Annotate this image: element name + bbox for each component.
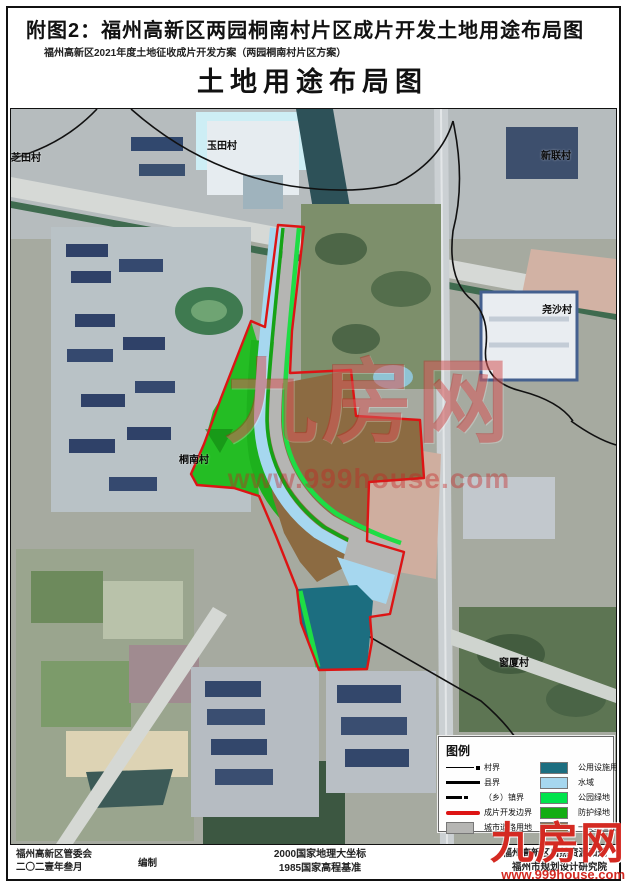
- dashed-line-symbol: [446, 796, 480, 800]
- footer-role: 编制: [138, 855, 157, 869]
- line-dot-symbol: [446, 766, 480, 770]
- park-swatch: [540, 792, 574, 804]
- figure-subtitle: 福州高新区2021年度土地征收成片开发方案（两园桐南村片区方案）: [44, 44, 346, 59]
- legend-item-protective-green: 防护绿地: [540, 807, 617, 818]
- legend-item-city-road: 城市道路用地: [446, 822, 532, 833]
- legend: 图例 村界 县界 （乡）镇界 成片开发边界: [438, 736, 614, 832]
- legend-left-column: 村界 县界 （乡）镇界 成片开发边界 城市道路用地: [446, 762, 532, 833]
- village-label: 玉田村: [207, 137, 237, 152]
- footer-date: 二〇二壹年叁月: [16, 861, 92, 874]
- map-title: 土地用途布局图: [0, 60, 625, 99]
- footer-center: 2000国家地理大坐标 1985国家高程基准: [200, 848, 440, 876]
- village-label: 尧沙村: [542, 301, 572, 316]
- red-line-symbol: [446, 811, 480, 815]
- village-label: 新联村: [541, 147, 571, 162]
- footer-elevation: 1985国家高程基准: [200, 862, 440, 876]
- village-label: 芝田村: [11, 149, 41, 164]
- footer-institute: 福州市规划设计研究院: [407, 861, 607, 875]
- legend-item-utility: 公用设施用地: [540, 762, 617, 773]
- footer-left: 福州高新区管委会 二〇二壹年叁月: [16, 848, 92, 875]
- map-svg: [11, 109, 616, 844]
- footer-right: 福州高新区自然资源和规 福州市规划设计研究院: [407, 847, 607, 876]
- industrial-swatch: [540, 822, 574, 834]
- legend-title: 图例: [446, 742, 606, 759]
- legend-right-column: 公用设施用地 水域 公园绿地 防护绿地 一类工业用地: [540, 762, 617, 833]
- thick-line-symbol: [446, 781, 480, 785]
- legend-item-town-boundary: （乡）镇界: [446, 792, 532, 803]
- map-footer: 福州高新区管委会 二〇二壹年叁月 编制 2000国家地理大坐标 1985国家高程…: [10, 845, 615, 877]
- road-swatch: [446, 822, 480, 834]
- land-use-map: 芝田村 玉田村 新联村 尧沙村 桐南村 窗厦村 九房网 www.999house…: [10, 108, 617, 845]
- protective-swatch: [540, 807, 574, 819]
- village-label: 桐南村: [179, 451, 209, 466]
- legend-item-industrial: 一类工业用地: [540, 822, 617, 833]
- water-swatch: [540, 777, 574, 789]
- footer-org: 福州高新区管委会: [16, 848, 92, 861]
- legend-item-park-green: 公园绿地: [540, 792, 617, 803]
- footer-datum: 2000国家地理大坐标: [200, 848, 440, 862]
- legend-item-village-boundary: 村界: [446, 762, 532, 773]
- village-label: 窗厦村: [499, 654, 529, 669]
- utility-swatch: [540, 762, 574, 774]
- legend-item-development-boundary: 成片开发边界: [446, 807, 532, 818]
- footer-bureau: 福州高新区自然资源和规: [407, 847, 607, 861]
- figure-title: 附图2：福州高新区两园桐南村片区成片开发土地用途布局图: [26, 14, 584, 43]
- legend-item-water: 水域: [540, 777, 617, 788]
- legend-item-county-boundary: 县界: [446, 777, 532, 788]
